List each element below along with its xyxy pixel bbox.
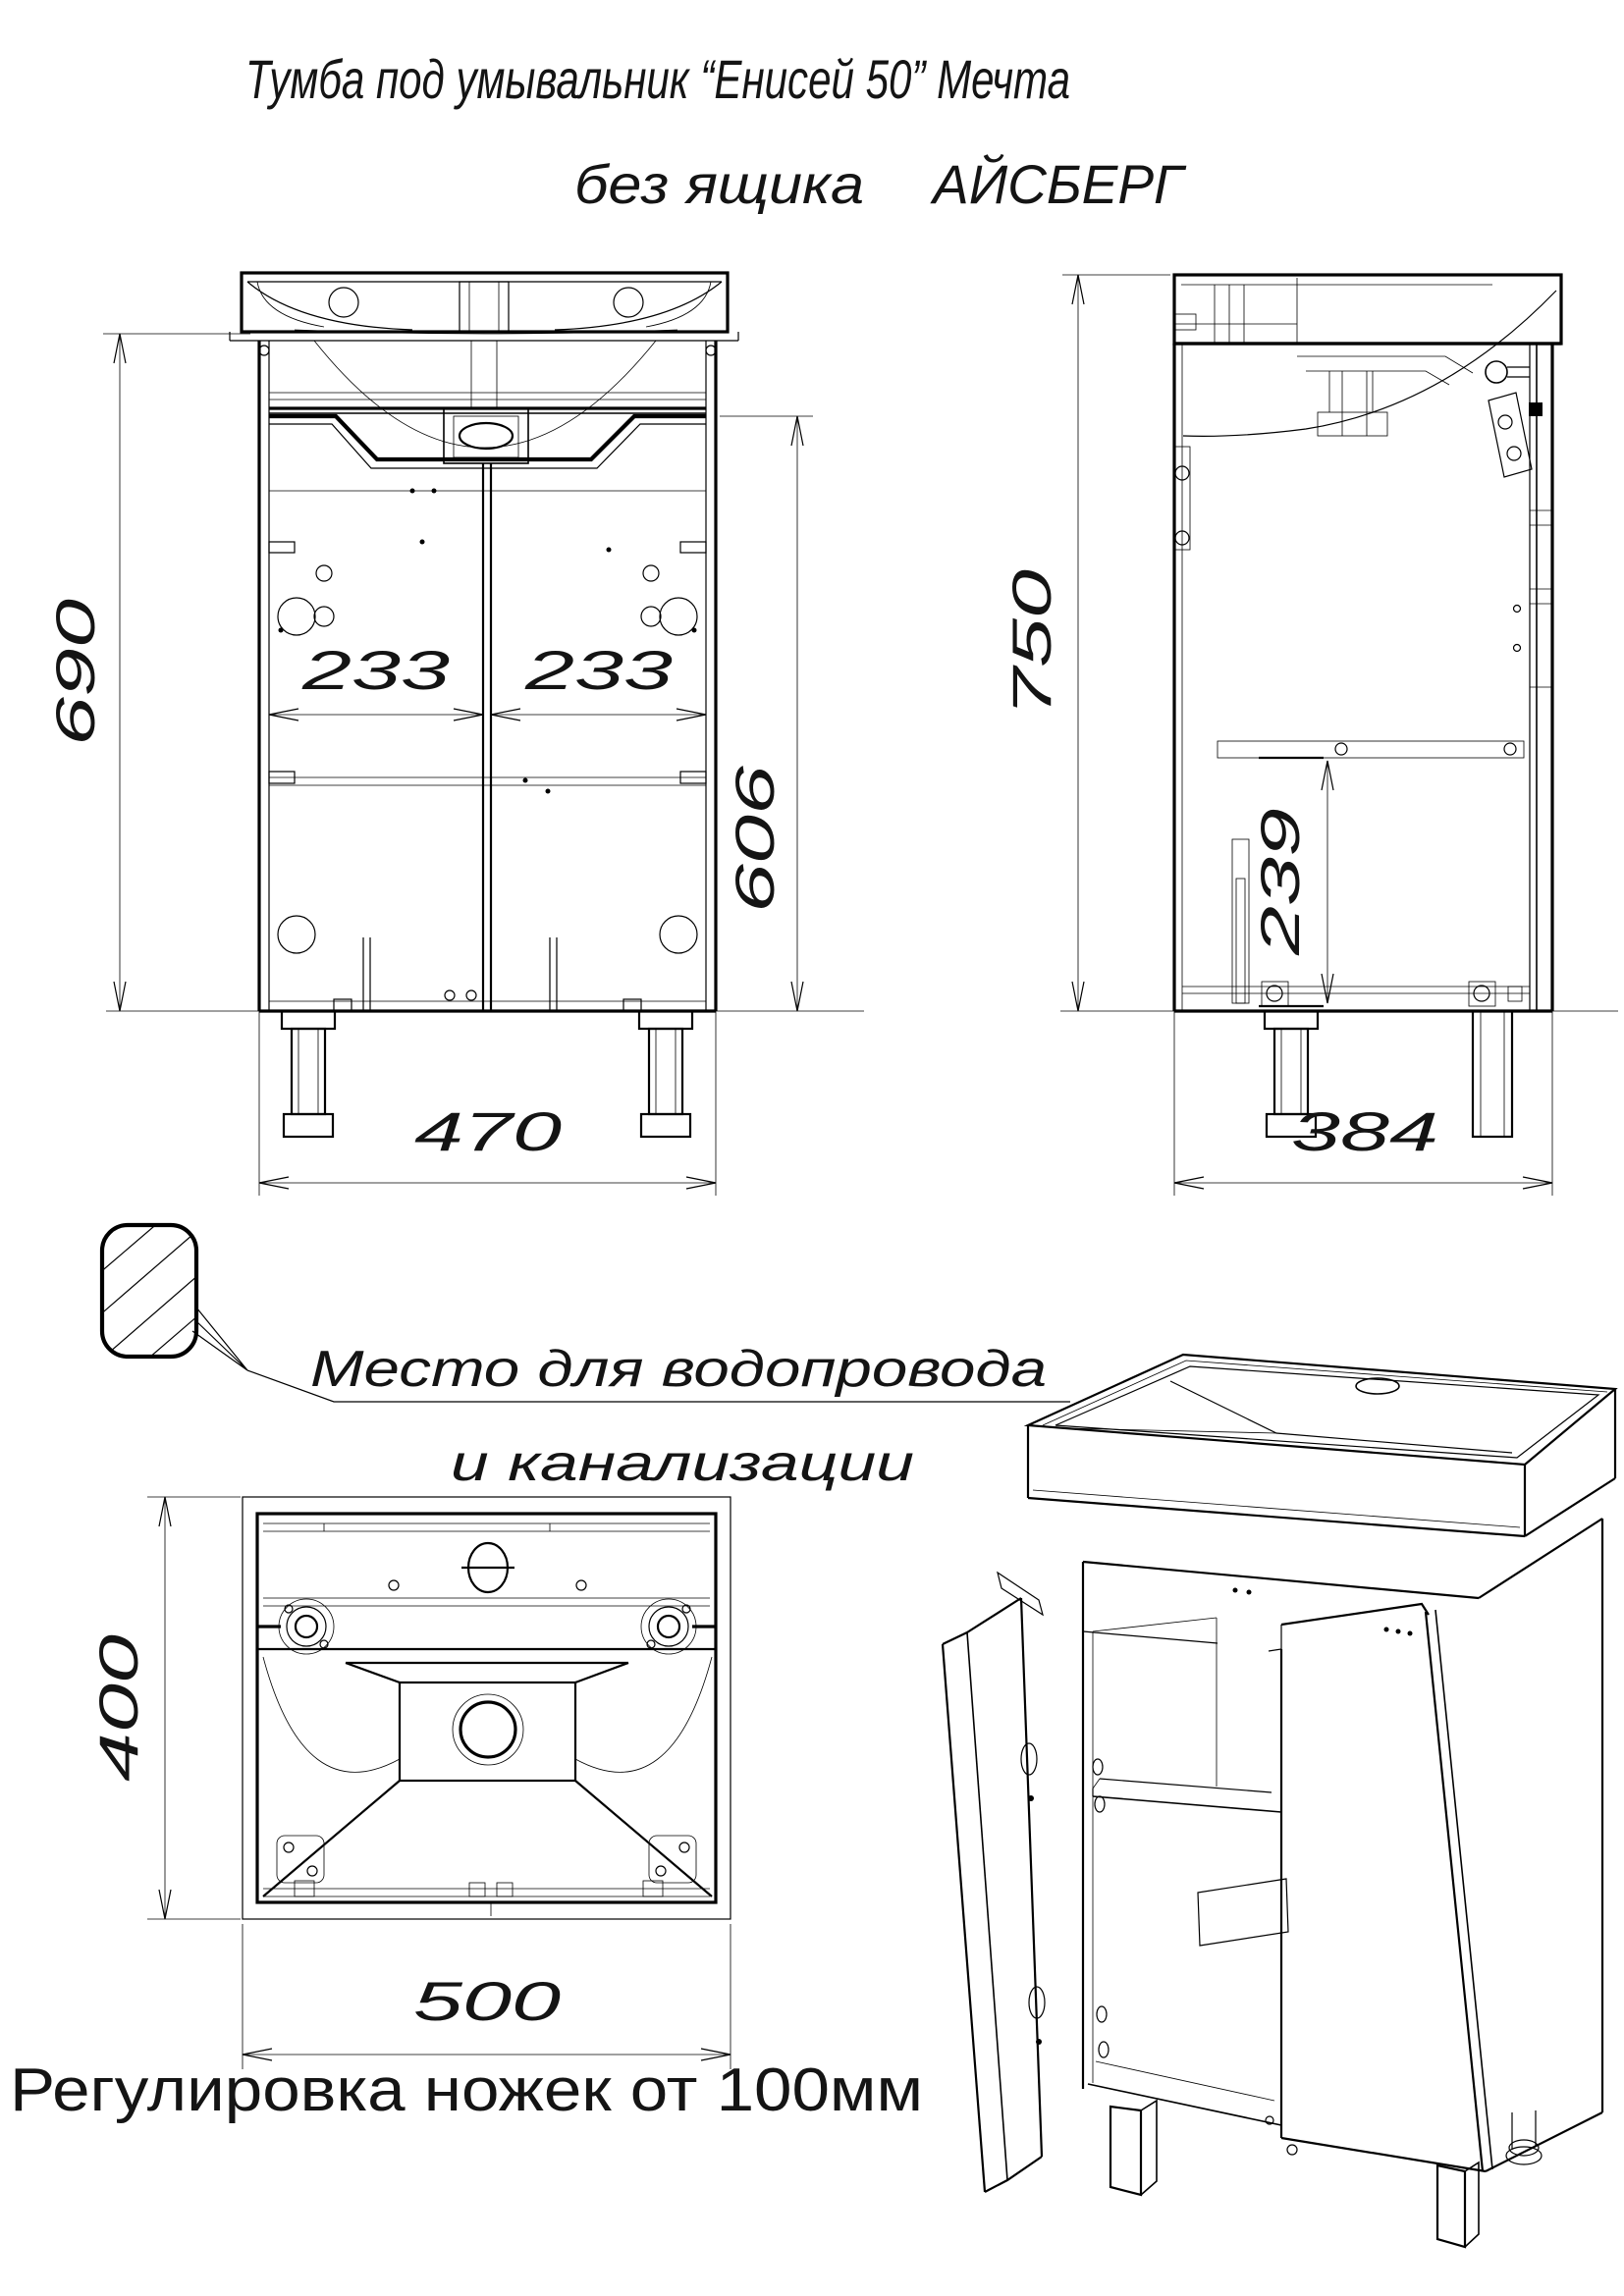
dim-233-right: 233 bbox=[523, 639, 673, 701]
top-view-dimensions: 400 500 bbox=[87, 1497, 731, 2069]
side-view-dimensions: 750 239 384 bbox=[1001, 275, 1552, 1196]
dim-470: 470 bbox=[414, 1100, 562, 1162]
legs-adjust-note: Регулировка ножек от 100мм bbox=[10, 2056, 923, 2124]
dim-239: 239 bbox=[1249, 808, 1311, 957]
drawing-canvas: Тумба под умывальник “Енисей 50” Мечта б… bbox=[0, 0, 1624, 2296]
dim-384: 384 bbox=[1291, 1100, 1438, 1162]
dim-233-left: 233 bbox=[300, 639, 450, 701]
iso-view bbox=[943, 1355, 1615, 2247]
title-line2-left: без ящика bbox=[574, 153, 864, 215]
front-view bbox=[106, 273, 864, 1137]
drawing-title: Тумба под умывальник “Енисей 50” Мечта б… bbox=[245, 48, 1186, 215]
dim-500: 500 bbox=[413, 1970, 561, 2032]
plumbing-note-line1: Место для водопровода bbox=[310, 1341, 1047, 1398]
technical-drawing-page: Тумба под умывальник “Енисей 50” Мечта б… bbox=[0, 0, 1624, 2296]
plumbing-hatch-icon bbox=[102, 1225, 196, 1357]
plumbing-note-line2: и канализации bbox=[451, 1435, 914, 1492]
dim-400: 400 bbox=[87, 1634, 149, 1782]
dim-690: 690 bbox=[44, 599, 106, 746]
front-view-dimensions: 690 233 233 606 470 bbox=[44, 334, 813, 1196]
iso-open-door bbox=[943, 1573, 1045, 2192]
side-view bbox=[1060, 275, 1618, 1137]
dim-750: 750 bbox=[1001, 569, 1062, 717]
title-line2-right: АЙСБЕРГ bbox=[930, 153, 1186, 215]
title-line1: Тумба под умывальник “Енисей 50” Мечта bbox=[245, 48, 1070, 110]
top-view-mounts bbox=[257, 1599, 716, 1654]
plumbing-legend: Место для водопровода и канализации bbox=[84, 1215, 1070, 1492]
top-view bbox=[243, 1497, 731, 1919]
dim-606: 606 bbox=[724, 765, 785, 913]
